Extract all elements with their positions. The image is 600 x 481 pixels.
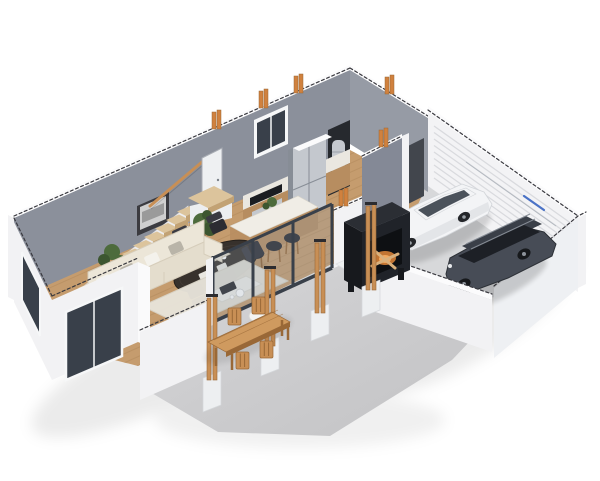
floor-plan-canvas [0,0,600,481]
floor-plan-render [0,0,600,481]
